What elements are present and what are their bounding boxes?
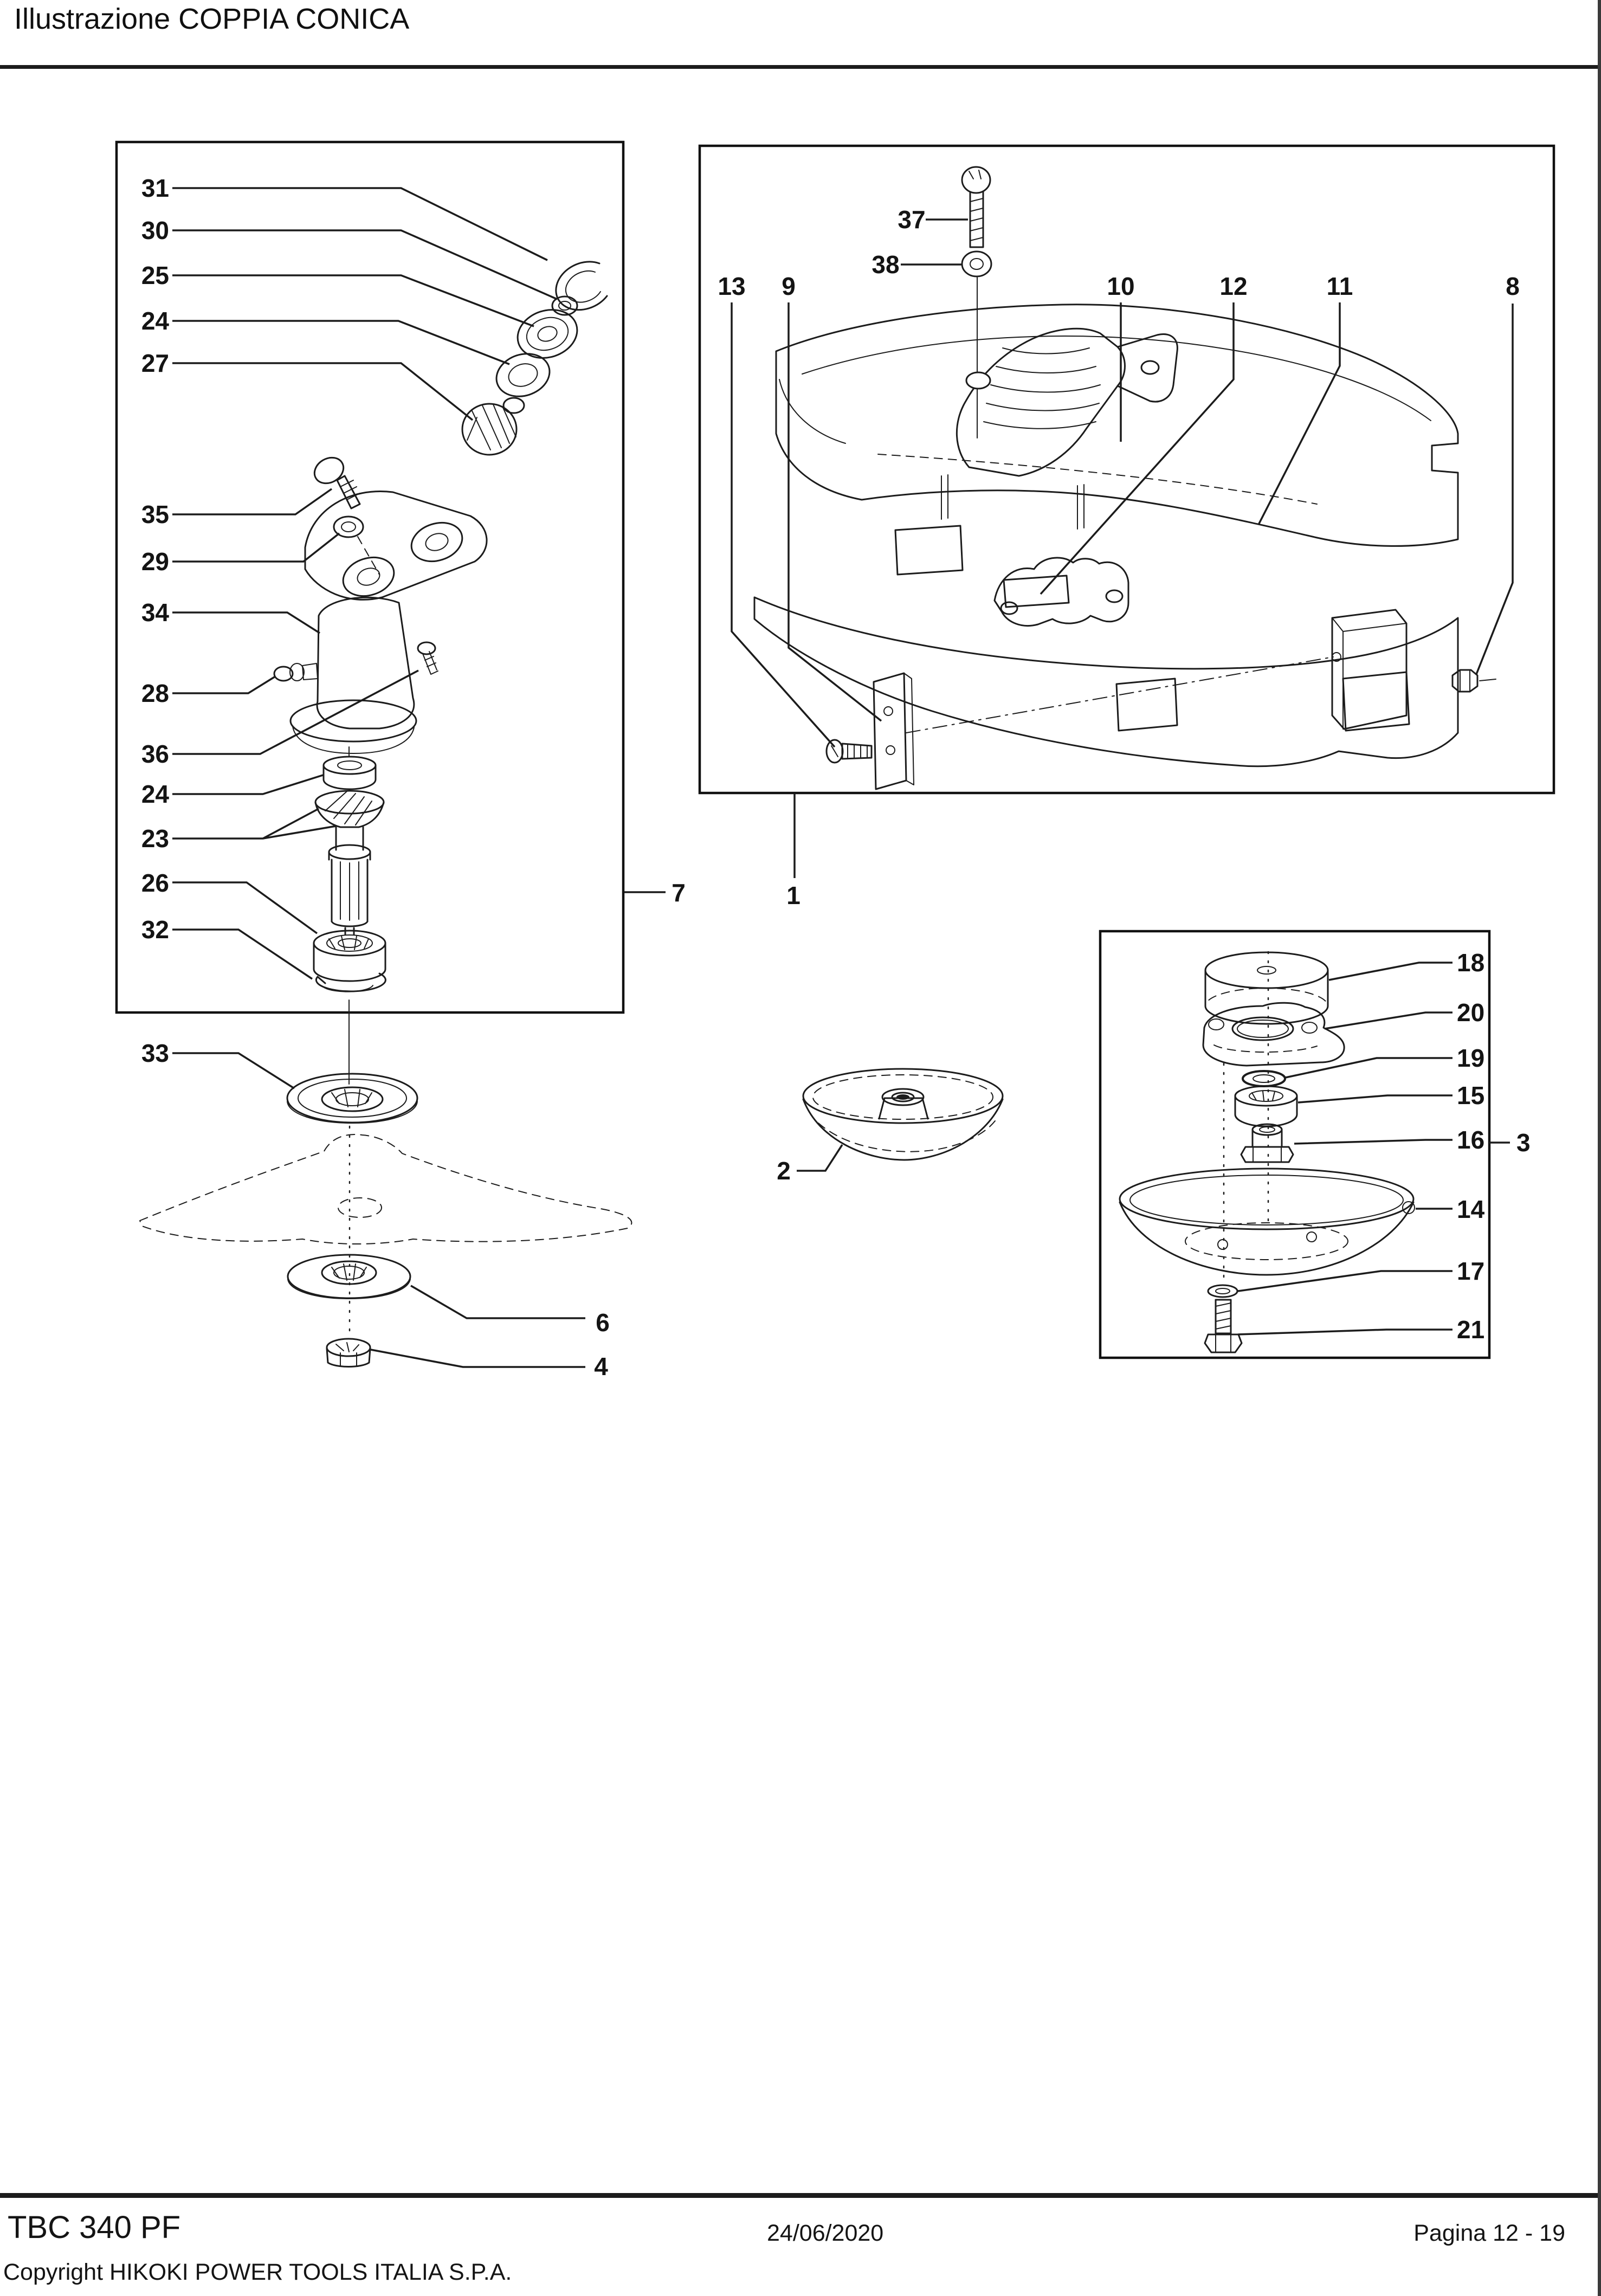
callout-32: 32 (141, 915, 312, 979)
flange-cup-33 (287, 1074, 417, 1123)
callout-25: 25 (141, 261, 534, 326)
gear-case-34 (290, 492, 487, 753)
callout-38-label: 38 (871, 250, 899, 279)
callout-11-label: 11 (1327, 272, 1353, 300)
callout-19: 19 (1286, 1044, 1484, 1078)
callout-10-label: 10 (1107, 272, 1134, 300)
callout-27-label: 27 (141, 349, 169, 377)
callout-7: 7 (624, 879, 686, 907)
bowl-14 (1120, 1169, 1415, 1275)
callout-2: 2 (777, 1145, 842, 1185)
gearbox-assembly (274, 262, 607, 1084)
callout-10: 10 (1107, 272, 1134, 442)
callout-8-label: 8 (1506, 272, 1520, 300)
callout-37-label: 37 (898, 205, 925, 234)
callout-8: 8 (1476, 272, 1520, 674)
callout-30-label: 30 (141, 216, 169, 244)
callout-11: 11 (1258, 272, 1353, 525)
plate-screw-13 (827, 740, 871, 763)
catalog-page: Illustrazione COPPIA CONICA TBC 340 PF 2… (0, 0, 1601, 2296)
callout-18-label: 18 (1457, 949, 1484, 977)
callout-16-label: 16 (1457, 1126, 1484, 1154)
callout-1: 1 (786, 794, 800, 910)
callout-21: 21 (1238, 1315, 1484, 1344)
callout-31-label: 31 (141, 174, 169, 202)
bearing-26 (314, 931, 385, 981)
saddle-clamp-12 (995, 558, 1128, 626)
callout-34-label: 34 (141, 598, 170, 627)
callout-33: 33 (141, 1039, 294, 1088)
callout-36: 36 (141, 670, 418, 768)
callout-12: 12 (1041, 272, 1248, 594)
callout-2-label: 2 (777, 1157, 791, 1185)
bearing-25 (511, 302, 583, 365)
callout-23-label: 23 (141, 824, 169, 853)
case-screw (418, 642, 435, 654)
callout-31: 31 (141, 174, 547, 260)
guard-nut-8 (1452, 670, 1496, 692)
pinion-gear-27 (462, 398, 524, 455)
callout-23: 23 (141, 809, 336, 853)
seal-ring-19 (1243, 1071, 1285, 1086)
callout-29-label: 29 (141, 547, 169, 576)
callout-38: 38 (871, 250, 961, 279)
callout-37: 37 (898, 205, 968, 234)
callout-13: 13 (718, 272, 835, 747)
washer-24a (491, 347, 556, 403)
callout-35-label: 35 (141, 500, 169, 528)
cap-disc-18 (1205, 952, 1328, 1024)
callout-14: 14 (1416, 1195, 1485, 1223)
bearing-24b (324, 757, 376, 789)
guard-frame-box (700, 146, 1554, 793)
callout-20: 20 (1325, 998, 1484, 1029)
callout-9: 9 (782, 272, 881, 721)
exploded-parts-diagram: 31 30 25 24 27 35 (0, 0, 1601, 2296)
guard-mount-block (1332, 610, 1406, 729)
callout-24a: 24 (141, 307, 509, 364)
guard-screw-37 (962, 167, 990, 247)
callout-16: 16 (1294, 1126, 1484, 1154)
callout-4: 4 (371, 1350, 608, 1381)
callout-28-label: 28 (141, 679, 169, 707)
grease-fitting-28 (274, 663, 318, 681)
guard-bracket-10 (957, 328, 1177, 476)
callout-27: 27 (141, 349, 473, 420)
callout-1-label: 1 (786, 881, 800, 910)
guard-washer-38 (962, 251, 991, 276)
fixing-plate-9 (874, 673, 914, 789)
callout-25-label: 25 (141, 261, 169, 289)
bolt-21 (1205, 1300, 1242, 1352)
protection-cup-2 (803, 1069, 1003, 1160)
callout-3: 3 (1489, 1128, 1531, 1157)
blade-nut-4 (327, 1339, 370, 1367)
callout-35: 35 (141, 489, 332, 528)
guard-assembly (754, 167, 1496, 789)
callout-33-label: 33 (141, 1039, 169, 1067)
callout-26-label: 26 (141, 869, 169, 897)
callout-9-label: 9 (782, 272, 796, 300)
callout-3-label: 3 (1516, 1128, 1531, 1157)
callout-24b: 24 (141, 775, 323, 808)
blade-stack-assembly (140, 1074, 631, 1367)
callout-7-label: 7 (672, 879, 686, 907)
callout-12-label: 12 (1219, 272, 1247, 300)
callout-20-label: 20 (1457, 998, 1484, 1027)
washer-17 (1208, 1285, 1237, 1297)
callout-17-label: 17 (1457, 1257, 1484, 1285)
three-point-blade (140, 1134, 631, 1244)
guard-window-1 (895, 526, 963, 575)
callout-18: 18 (1329, 949, 1484, 980)
bearing-15 (1235, 1086, 1297, 1126)
callout-21-label: 21 (1457, 1315, 1484, 1344)
blade-holder-assembly (1120, 952, 1415, 1352)
callout-29: 29 (141, 533, 339, 576)
callout-24b-label: 24 (141, 780, 170, 808)
callout-34: 34 (141, 598, 320, 633)
callout-14-label: 14 (1457, 1195, 1485, 1223)
callout-15-label: 15 (1457, 1081, 1484, 1110)
callout-28: 28 (141, 676, 275, 707)
callout-4-label: 4 (594, 1352, 608, 1381)
callout-13-label: 13 (718, 272, 745, 300)
guard-lower-band (754, 597, 1458, 766)
callout-15: 15 (1298, 1081, 1484, 1110)
callout-36-label: 36 (141, 740, 169, 768)
callout-6: 6 (411, 1286, 610, 1337)
callout-24a-label: 24 (141, 307, 170, 335)
spacer-16 (1241, 1124, 1293, 1162)
callout-6-label: 6 (596, 1308, 610, 1337)
callout-19-label: 19 (1457, 1044, 1484, 1072)
callout-32-label: 32 (141, 915, 169, 944)
callout-30: 30 (141, 216, 557, 299)
centerline-dashdot (906, 657, 1333, 733)
bevel-gear-shaft-23 (315, 791, 384, 934)
